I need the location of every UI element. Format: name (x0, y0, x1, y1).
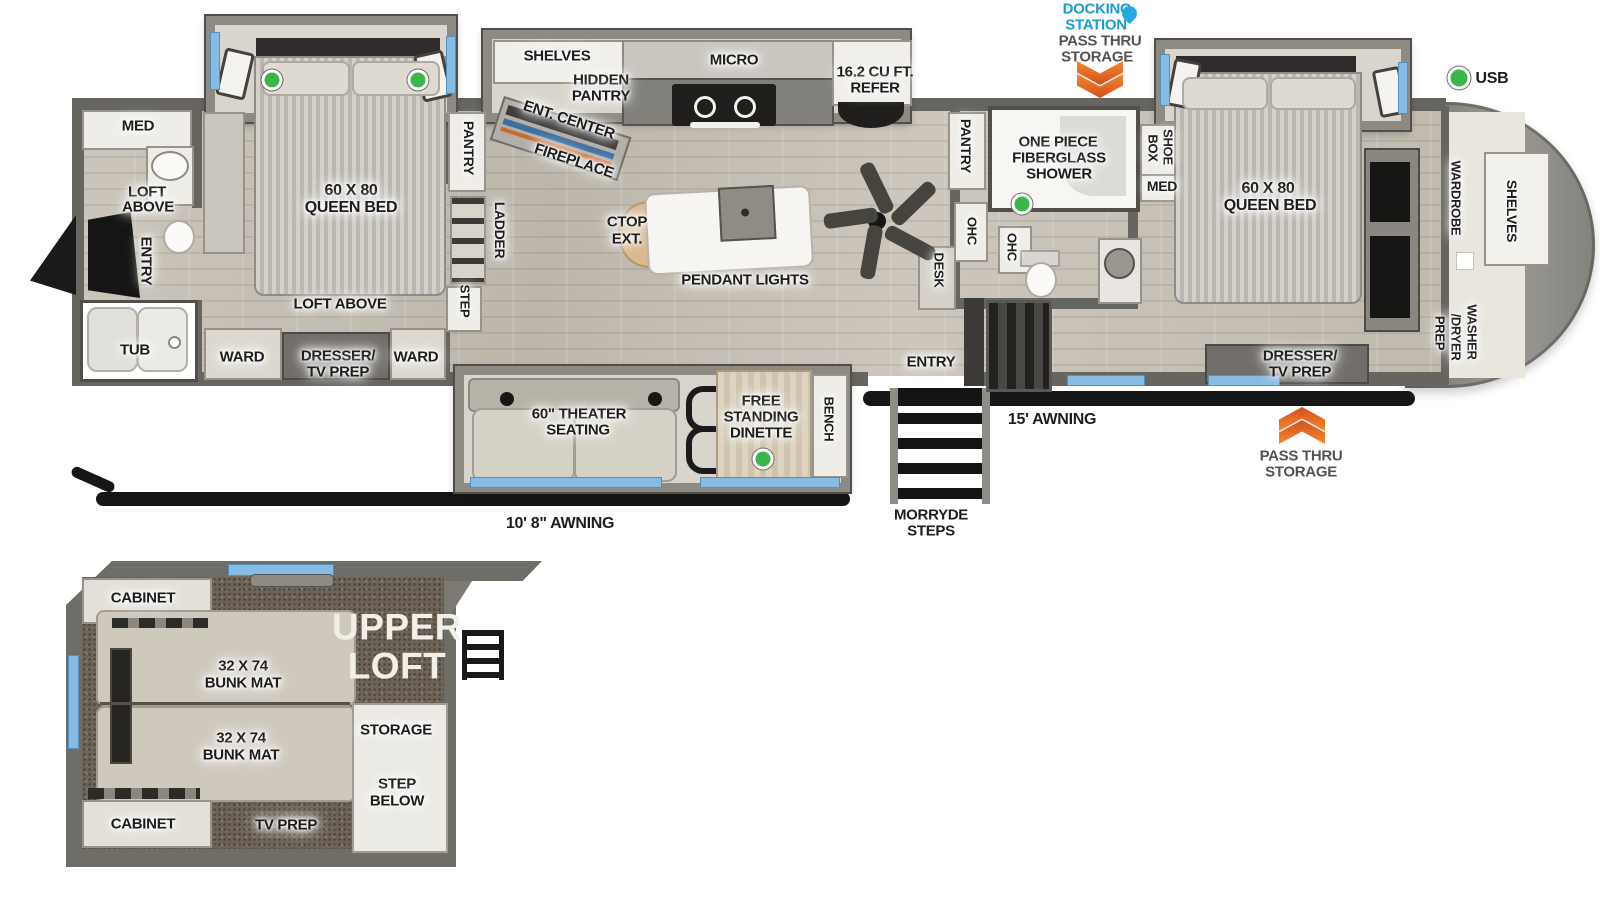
pantry-right-label: PANTRY (959, 119, 973, 173)
pendant-lights-label: PENDANT LIGHTS (681, 273, 808, 288)
shower-usb-dot (1012, 194, 1033, 215)
docking-station-label2: STATION (1065, 18, 1127, 33)
loft-ladder (462, 630, 504, 680)
pass-thru-storage-bottom-label2: STORAGE (1265, 465, 1337, 480)
loft-cabinet-top-vents (112, 618, 208, 628)
desk-label: DESK (933, 253, 946, 288)
theater-seating-label2: SEATING (546, 423, 609, 438)
theater-seating-label: 60" THEATER (532, 407, 626, 422)
pantry-left-label: PANTRY (462, 121, 476, 175)
hidden-pantry-label2: PANTRY (572, 89, 630, 104)
living-slide-window-right (700, 477, 840, 488)
loft-bunk1-label2: BUNK MAT (205, 676, 281, 691)
dinette-label2: STANDING (724, 410, 799, 425)
usb-indicator-icon (1448, 67, 1471, 90)
loft-step-below-label: STEP (378, 777, 416, 792)
sofa-cupholder-left (500, 392, 514, 406)
master-bed-label: 60 X 80 (1241, 181, 1294, 197)
shoe-box-label: SHOE (1162, 129, 1175, 165)
micro-label: MICRO (710, 53, 759, 68)
loft-cabinet-bottom-vents (88, 788, 200, 799)
loft-above-rear-label2: ABOVE (122, 200, 174, 215)
master-dresser-label2: TV PREP (1269, 365, 1331, 380)
master-closet-opening-top (1370, 162, 1410, 222)
refer-label: 16.2 CU FT. (837, 65, 914, 80)
shower-label: ONE PIECE (1019, 135, 1098, 150)
bedroom2-dresser-label2: TV PREP (307, 365, 369, 380)
ctop-ext-label: CTOP (607, 215, 647, 230)
tub-drain (168, 336, 181, 349)
rear-toilet (163, 220, 195, 254)
refer-label2: REFER (850, 81, 899, 96)
loft-step-below-label2: BELOW (370, 794, 424, 809)
bottom-wall-window-left (1067, 375, 1145, 386)
bench-label: BENCH (823, 397, 836, 442)
loft-tv-prep-label: TV PREP (255, 818, 317, 833)
med-cabinet-label: MED (122, 119, 154, 134)
loft-bunk-divider (100, 702, 350, 705)
oven-handle (690, 122, 760, 128)
rear-entry-label: ENTRY (139, 237, 154, 286)
washer-dryer-square (1456, 252, 1474, 270)
burner-right-icon (734, 96, 756, 118)
kitchen-shelves-label: SHELVES (524, 49, 591, 64)
dinette-usb-dot (753, 449, 774, 470)
interior-stairs (986, 300, 1052, 392)
loft-bunk1-label: 32 X 74 (218, 659, 268, 674)
bedroom2-ward-right-label: WARD (394, 350, 439, 365)
ladder-label: LADDER (493, 202, 507, 259)
loft-shade-roll (250, 574, 334, 587)
bedroom2-dresser-label: DRESSER/ (301, 349, 375, 364)
entry-door-label: ENTRY (907, 355, 956, 370)
bedroom2-usb-dot-right (408, 70, 429, 91)
bath-toilet (1025, 262, 1057, 298)
awning-15-label: 15' AWNING (1008, 412, 1096, 428)
upper-loft-label: UPPER (332, 609, 462, 646)
pass-thru-storage-top-label: PASS THRU (1059, 34, 1142, 49)
bedroom2-ward-left-label: WARD (220, 350, 265, 365)
dinette-chair-bottom (686, 426, 716, 474)
step-label: STEP (459, 285, 472, 318)
shoe-box-label2: BOX (1147, 134, 1160, 161)
bedroom2-slide-window-right (446, 36, 456, 94)
washer-dryer-label2: /DRYER (1450, 314, 1463, 361)
cooktop (672, 84, 776, 126)
bedroom2-bed-label2: QUEEN BED (305, 200, 397, 216)
front-shelves-label: SHELVES (1505, 180, 1519, 242)
master-slide-window-right (1398, 62, 1408, 114)
morryde-steps-label: MORRYDE (894, 508, 968, 523)
master-closet-opening-bottom (1370, 236, 1410, 318)
ctop-ext-label2: EXT. (612, 232, 642, 247)
master-pillow-right (1270, 77, 1356, 110)
morryde-steps-label2: STEPS (907, 524, 955, 539)
morryde-steps (890, 388, 990, 504)
master-slide-window-left (1160, 54, 1170, 106)
awning-10-8-bar (96, 492, 850, 506)
awning-10-8-label: 10' 8" AWNING (506, 516, 614, 532)
living-slide-window-left (470, 477, 662, 488)
ohc1-label: OHC (966, 217, 979, 245)
ladder-cabinet (450, 196, 486, 284)
tub-basin-left (87, 307, 138, 372)
burner-left-icon (694, 96, 716, 118)
ohc2-label: OHC (1006, 233, 1019, 261)
master-dresser-label: DRESSER/ (1263, 349, 1337, 364)
loft-window-left (68, 655, 79, 749)
bath-sink (151, 151, 189, 181)
usb-label: USB (1476, 71, 1509, 87)
bedroom2-bed-label: 60 X 80 (324, 183, 377, 199)
stair-landing (964, 298, 984, 386)
tub-label: TUB (120, 343, 150, 358)
loft-bunk2-label2: BUNK MAT (203, 748, 279, 763)
bedroom2-slide-window-left (210, 32, 220, 90)
washer-dryer-label: WASHER (1466, 304, 1479, 359)
shower-label3: SHOWER (1026, 167, 1092, 182)
wardrobe-label: WARDROBE (1450, 161, 1463, 236)
master-bed-label2: QUEEN BED (1224, 198, 1316, 214)
master-pillow-left (1182, 77, 1268, 110)
bath-sink2 (1104, 248, 1135, 279)
sofa-cupholder-right (648, 392, 662, 406)
bedroom2-loft-above-label: LOFT ABOVE (293, 297, 386, 312)
loft-above-rear-label: LOFT (128, 185, 166, 200)
loft-cabinet-bottom-label: CABINET (111, 817, 176, 832)
loft-bunk2-label: 32 X 74 (216, 731, 266, 746)
med-cabinet2-label: MED (1147, 179, 1177, 193)
loft-cabinet-top-label: CABINET (111, 591, 176, 606)
rear-door-flap (30, 215, 76, 295)
dinette-label: FREE (742, 394, 781, 409)
bedroom2-headboard (256, 38, 440, 57)
dinette-label3: DINETTE (730, 426, 792, 441)
shower-label2: FIBERGLASS (1012, 151, 1106, 166)
washer-dryer-label3: PREP (1434, 316, 1447, 350)
bedroom2-usb-dot-left (262, 70, 283, 91)
bedroom2-side-cabinet (203, 112, 245, 254)
pass-thru-storage-bottom-label: PASS THRU (1260, 449, 1343, 464)
loft-storage-label: STORAGE (360, 723, 432, 738)
upper-loft-label2: LOFT (348, 648, 447, 685)
loft-top-wall-extension (454, 561, 542, 581)
hidden-pantry-label: HIDDEN (573, 73, 629, 88)
awning-10-8-bar-end (70, 465, 116, 494)
loft-tv (110, 648, 132, 764)
rv-floorplan-page: DOCKING STATION PASS THRU STORAGE USB ME… (0, 0, 1600, 906)
